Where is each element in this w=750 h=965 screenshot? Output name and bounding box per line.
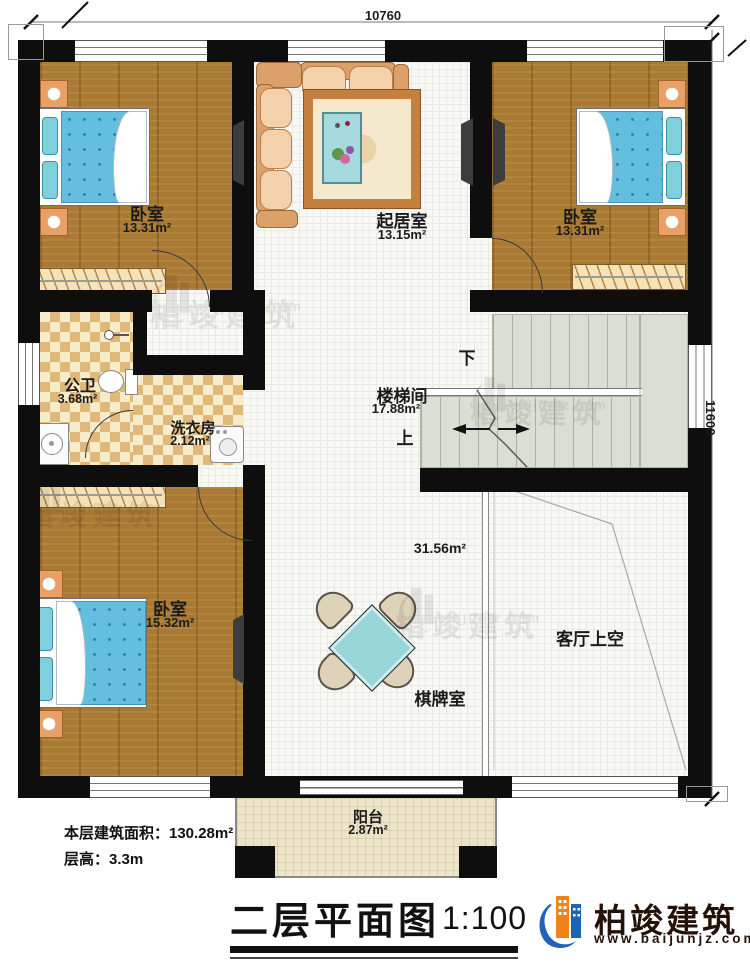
stairs-down-label: 下	[452, 344, 482, 369]
sofa-cushion	[260, 88, 292, 128]
room-area-living: 13.15m²	[362, 227, 442, 242]
balcony-sliding-door	[300, 780, 463, 795]
flower	[346, 146, 354, 154]
floor-plan: 卧室 13.31m² 起居室 13.15m² 卧室 13.31m² 公卫 3.6…	[0, 0, 750, 965]
floor-height-line: 层高：3.3m	[64, 848, 143, 869]
sofa-arm	[256, 210, 298, 228]
flower	[340, 154, 350, 164]
window	[90, 776, 210, 798]
shower-arm	[113, 334, 129, 336]
bed-sheet	[113, 111, 147, 203]
stairs-up-label: 上	[390, 424, 420, 449]
room-label-game: 棋牌室	[397, 685, 483, 710]
stair-landing	[640, 314, 688, 468]
nightstand	[40, 208, 68, 236]
wall-laundry-top	[133, 355, 243, 375]
window	[527, 40, 663, 62]
tv	[461, 118, 473, 186]
wall-bedroom-tl-right	[232, 62, 254, 312]
window	[512, 776, 678, 798]
stair-lower-flight	[420, 396, 640, 468]
stair-upper-flight	[492, 314, 640, 392]
wall-bath-laundry-stub	[133, 312, 147, 359]
bed	[38, 108, 150, 206]
room-area-game: 31.56m²	[400, 540, 480, 556]
sink-drain	[49, 441, 54, 446]
room-area-balcony: 2.87m²	[328, 823, 408, 837]
sofa-cushion	[260, 129, 292, 169]
room-area-bedroom-bl: 15.32m²	[130, 615, 210, 630]
coffee-table	[322, 112, 362, 184]
brand-url: www.baijunjz.com	[594, 931, 750, 946]
wall-bathroom-bottom	[18, 465, 198, 487]
dim-extension-box	[664, 26, 724, 62]
window	[75, 40, 207, 62]
wall-living-right-upper	[470, 62, 492, 238]
stair-handrail	[420, 388, 642, 396]
dim-top-value: 10760	[355, 8, 411, 23]
dim-extension-box	[686, 786, 728, 802]
bed	[576, 108, 686, 206]
nightstand	[658, 208, 686, 236]
nightstand	[40, 80, 68, 108]
tv	[233, 614, 244, 684]
room-area-laundry: 2.12m²	[150, 434, 230, 448]
drawing-scale: 1:100	[442, 900, 527, 937]
room-area-bedroom-tl: 13.31m²	[107, 220, 187, 235]
room-label-void: 客厅上空	[538, 625, 642, 650]
pillow	[42, 161, 58, 199]
window	[288, 40, 385, 62]
title-underline-thin	[230, 957, 518, 959]
pillow	[42, 117, 58, 155]
room-area-bedroom-tr: 13.31m²	[540, 223, 620, 238]
tv	[233, 120, 244, 186]
wall-bedroom-tl-bottom	[18, 290, 152, 312]
cup	[345, 121, 350, 126]
wall-laundry-right-upper	[243, 290, 265, 390]
tv	[493, 118, 505, 186]
title-underline-thick	[230, 946, 518, 953]
wall-bedroom-tr-bottom	[470, 290, 712, 312]
wall-stairs-bottom	[420, 468, 712, 492]
dim-extension-box	[8, 24, 44, 60]
wardrobe	[572, 264, 686, 290]
wall-left	[18, 40, 40, 798]
void-railing	[482, 492, 489, 776]
floor-area-line: 本层建筑面积：130.28m²	[64, 822, 233, 843]
dim-right-value: 11600	[703, 400, 718, 435]
cup	[335, 123, 340, 128]
pillow	[666, 117, 682, 155]
balcony-pillar-right	[459, 846, 497, 878]
sink-counter	[35, 423, 69, 465]
brand-logo-icon	[534, 892, 586, 950]
drawing-title: 二层平面图	[230, 890, 440, 945]
pillow	[666, 161, 682, 199]
room-area-bathroom: 3.68m²	[40, 392, 115, 406]
balcony-pillar-left	[235, 846, 275, 878]
nightstand	[658, 80, 686, 108]
sofa-cushion	[260, 170, 292, 210]
wall-living-right-lower	[470, 293, 492, 312]
window	[18, 343, 40, 405]
room-area-stairs: 17.88m²	[355, 401, 437, 416]
